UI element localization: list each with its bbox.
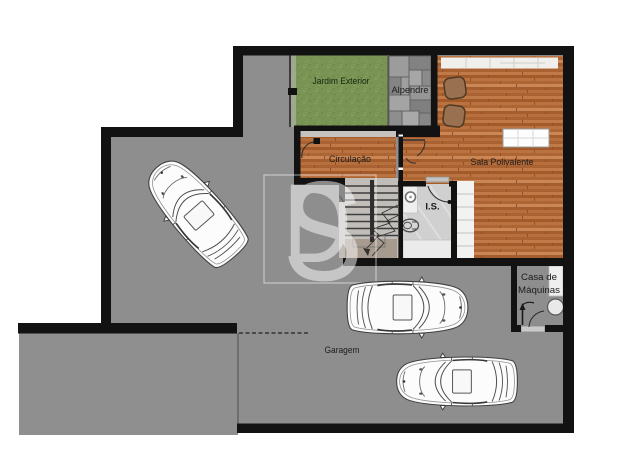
svg-text:Garagem: Garagem [325, 345, 360, 356]
svg-text:Máquinas: Máquinas [518, 285, 561, 295]
svg-text:Casa de: Casa de [521, 272, 557, 282]
svg-text:Sala Polivalente: Sala Polivalente [471, 157, 534, 168]
svg-text:Jardim Exterior: Jardim Exterior [313, 76, 370, 87]
svg-text:I.S.: I.S. [425, 202, 439, 213]
svg-text:Alpendre: Alpendre [392, 85, 429, 95]
